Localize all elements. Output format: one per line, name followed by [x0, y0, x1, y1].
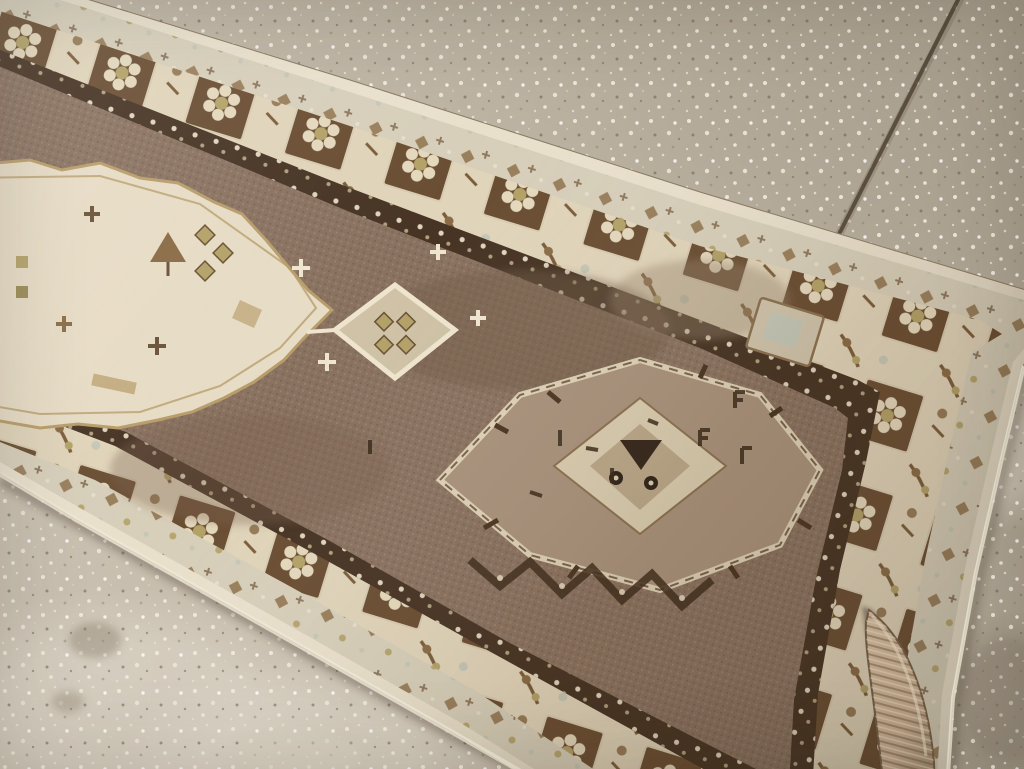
rug-photo-illustration	[0, 0, 1024, 769]
photo-vintage-runner-rug	[0, 0, 1024, 769]
